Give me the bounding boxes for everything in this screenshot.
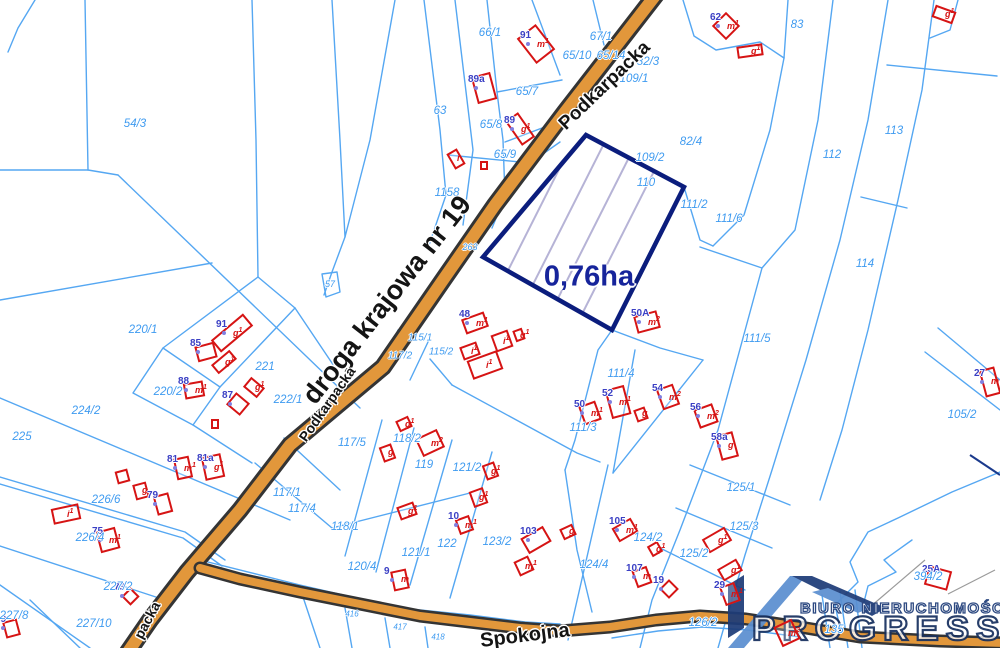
- cadastral-map-canvas[interactable]: BIURO NIERUCHOMOŚCI PROGRESS m19189ag189…: [0, 0, 1000, 648]
- parcel-lines: [0, 0, 1000, 648]
- highlight-area-label: 0,76ha: [544, 261, 634, 294]
- road-droga-krajowa-19: [128, 0, 658, 648]
- map-base-layer: [0, 0, 1000, 648]
- utility-lines: [870, 455, 1000, 607]
